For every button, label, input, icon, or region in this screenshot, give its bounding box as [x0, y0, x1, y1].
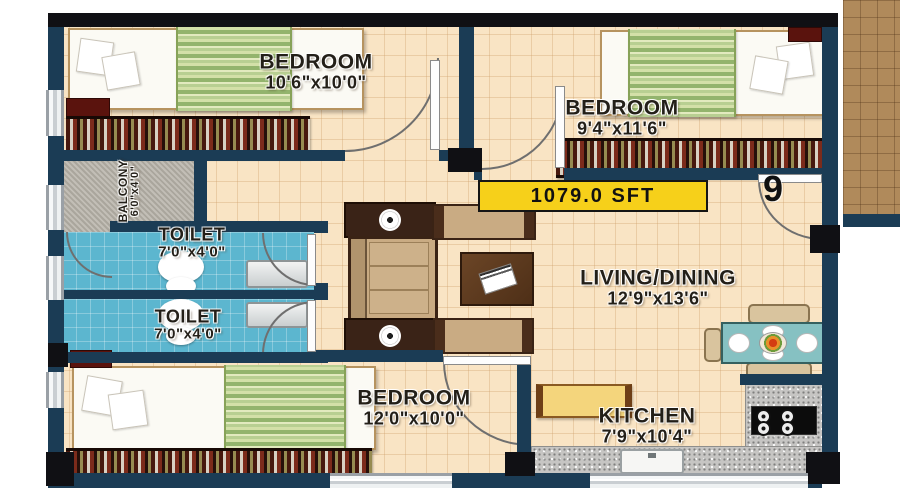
- door-leaf: [430, 60, 440, 150]
- door-leaf: [307, 234, 316, 286]
- wall: [843, 214, 900, 227]
- wall: [740, 374, 822, 385]
- dinner-plate: [728, 333, 750, 353]
- side-table: [344, 202, 436, 238]
- wall-block: [448, 148, 482, 172]
- room-name: BEDROOM: [565, 98, 678, 120]
- bedroom-top-left-label: BEDROOM 10'6"x10'0": [259, 52, 372, 93]
- decor-plate: [379, 325, 401, 347]
- wall-corner: [806, 452, 840, 484]
- toilet-upper-label: TOILET 7'0"x4'0": [158, 226, 226, 261]
- room-name: BALCONY: [117, 160, 130, 223]
- blanket: [224, 365, 346, 451]
- room-name: TOILET: [154, 308, 222, 327]
- door-leaf: [443, 356, 531, 365]
- pillow: [108, 390, 149, 431]
- pillow: [101, 51, 140, 90]
- area-badge: 1079.0 SFT: [478, 180, 708, 212]
- window: [46, 372, 64, 408]
- wall-block: [505, 452, 535, 476]
- door-leaf: [555, 86, 565, 168]
- dining-table: [721, 322, 825, 364]
- room-dims: 9'4"x11'6": [565, 120, 678, 139]
- door-leaf: [307, 300, 316, 352]
- wall-block: [48, 343, 68, 367]
- magazine: [478, 263, 517, 294]
- dinner-plate: [796, 333, 818, 353]
- sofa-backrest: [351, 239, 367, 319]
- wall-top: [48, 13, 838, 27]
- wall: [314, 221, 328, 233]
- window: [46, 256, 64, 300]
- coffee-table: [460, 252, 534, 306]
- room-name: KITCHEN: [599, 406, 696, 428]
- burner: [756, 421, 771, 436]
- armrest: [434, 206, 444, 238]
- stove: [751, 406, 817, 435]
- balcony-label: BALCONY 6'0"x4'0": [117, 160, 141, 223]
- bedroom-top-right-label: BEDROOM 9'4"x11'6": [565, 98, 678, 139]
- window: [330, 473, 452, 488]
- armchair: [433, 318, 534, 354]
- bedroom-bottom-label: BEDROOM 12'0"x10'0": [357, 388, 470, 429]
- wall: [459, 13, 474, 153]
- living-dining-label: LIVING/DINING 12'9"x13'6": [580, 268, 736, 309]
- kitchen-sink: [620, 449, 684, 474]
- unit-number-text: 9: [763, 168, 783, 209]
- wall: [314, 350, 443, 362]
- armrest: [435, 320, 445, 352]
- wall-block: [810, 225, 840, 253]
- side-table: [344, 318, 436, 354]
- wall: [48, 352, 314, 363]
- corridor-floor: [843, 0, 900, 214]
- room-dims: 10'6"x10'0": [259, 74, 372, 93]
- sofa-cushion: [369, 266, 429, 290]
- serving-dish: [759, 332, 787, 354]
- dining-chair: [704, 328, 722, 362]
- window: [590, 473, 808, 488]
- room-dims: 7'0"x4'0": [158, 245, 226, 261]
- dining-chair: [748, 304, 810, 324]
- wall: [194, 150, 207, 232]
- window: [46, 90, 64, 136]
- room-name: BEDROOM: [357, 388, 470, 410]
- armrest: [522, 320, 532, 352]
- room-dims: 7'9"x10'4": [599, 428, 696, 447]
- sofa-cushion: [369, 290, 429, 314]
- pillow: [749, 55, 788, 94]
- bed-bottom: [72, 366, 376, 450]
- room-name: BEDROOM: [259, 52, 372, 74]
- faucet: [648, 453, 656, 458]
- wall: [314, 283, 328, 300]
- wall-corner: [46, 452, 74, 486]
- room-name: TOILET: [158, 226, 226, 245]
- sofa-cushion: [369, 242, 429, 266]
- nightstand: [788, 27, 822, 42]
- sofa-three-seater: [348, 236, 438, 322]
- wall: [62, 290, 314, 299]
- room-dims: 12'9"x13'6": [580, 290, 736, 309]
- room-dims: 7'0"x4'0": [154, 327, 222, 343]
- toilet-lower-label: TOILET 7'0"x4'0": [154, 308, 222, 343]
- kitchen-label: KITCHEN 7'9"x10'4": [599, 406, 696, 447]
- area-badge-text: 1079.0 SFT: [531, 185, 656, 208]
- burner: [780, 421, 795, 436]
- room-name: LIVING/DINING: [580, 268, 736, 290]
- room-dims: 6'0"x4'0": [130, 160, 142, 223]
- window: [46, 185, 64, 230]
- decor-plate: [379, 209, 401, 231]
- unit-number: 9: [763, 168, 783, 210]
- room-dims: 12'0"x10'0": [357, 410, 470, 429]
- floor-plan: BEDROOM 10'6"x10'0" BEDROOM 9'4"x11'6" B…: [0, 0, 900, 500]
